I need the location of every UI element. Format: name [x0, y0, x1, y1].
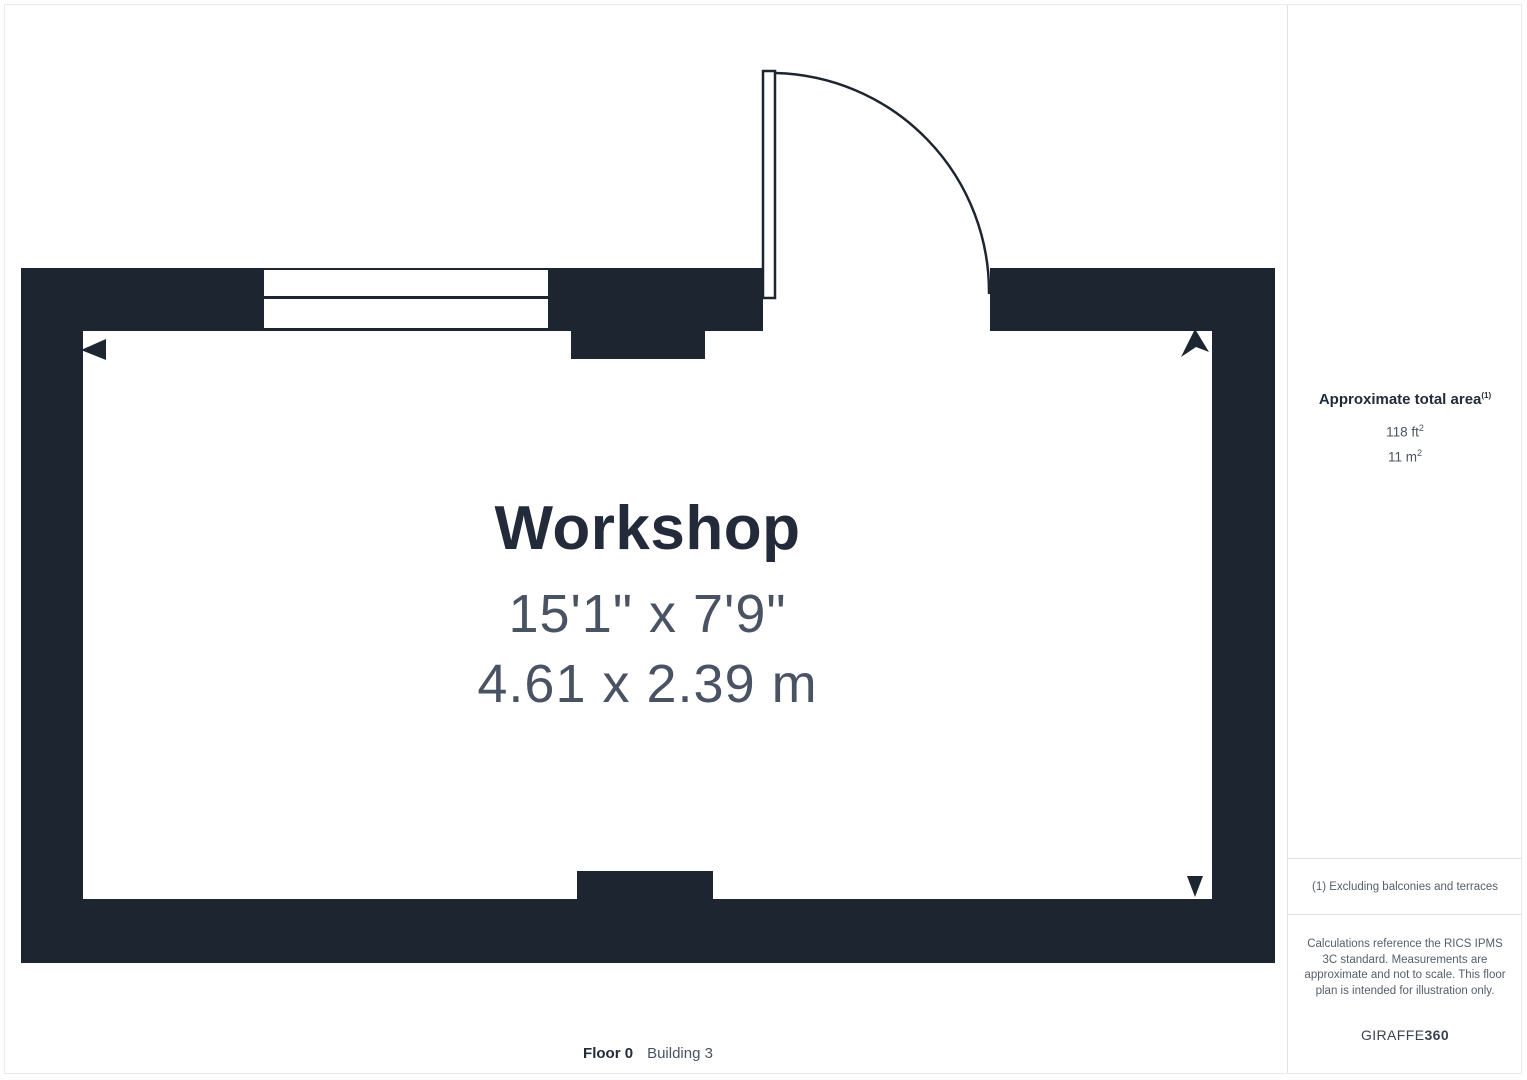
room-label-block: Workshop 15'1" x 7'9" 4.61 x 2.39 m: [83, 497, 1212, 719]
arrow-left-icon: [81, 339, 106, 360]
giraffe360-logo: GIRAFFE360: [1288, 1026, 1522, 1044]
area-metric: 11 m2: [1288, 443, 1522, 468]
room-dimensions-imperial: 15'1" x 7'9": [83, 579, 1212, 649]
area-imperial: 118 ft2: [1288, 418, 1522, 443]
building-label: Building 3: [647, 1045, 713, 1062]
floorplan-page: Workshop 15'1" x 7'9" 4.61 x 2.39 m Appr…: [0, 0, 1527, 1080]
room-dimensions-metric: 4.61 x 2.39 m: [83, 649, 1212, 719]
floor-label: Floor 0: [583, 1045, 633, 1062]
brand-regular-text: GIRAFFE: [1361, 1027, 1424, 1043]
area-summary: Approximate total area(1) 118 ft2 11 m2: [1288, 386, 1522, 467]
disclaimer-text: Calculations reference the RICS IPMS 3C …: [1301, 937, 1509, 999]
area-metric-sup: 2: [1417, 448, 1422, 458]
area-imperial-value: 118 ft: [1386, 425, 1419, 440]
area-title-footnote-marker: (1): [1481, 391, 1491, 400]
brand-bold-text: 360: [1424, 1027, 1449, 1043]
area-metric-value: 11 m: [1388, 449, 1417, 464]
plan-footer: Floor 0Building 3: [21, 1045, 1275, 1063]
area-imperial-sup: 2: [1419, 423, 1424, 433]
area-title: Approximate total area(1): [1288, 386, 1522, 410]
door-leaf: [763, 71, 775, 298]
door-swing-arc: [776, 73, 989, 294]
arrow-up-icon: [1181, 329, 1209, 357]
arrow-down-icon: [1187, 876, 1203, 897]
room-name: Workshop: [83, 497, 1212, 561]
area-footnote-text: (1) Excluding balconies and terraces: [1312, 881, 1498, 893]
area-title-text: Approximate total area: [1319, 391, 1482, 408]
area-footnote: (1) Excluding balconies and terraces: [1288, 858, 1522, 915]
